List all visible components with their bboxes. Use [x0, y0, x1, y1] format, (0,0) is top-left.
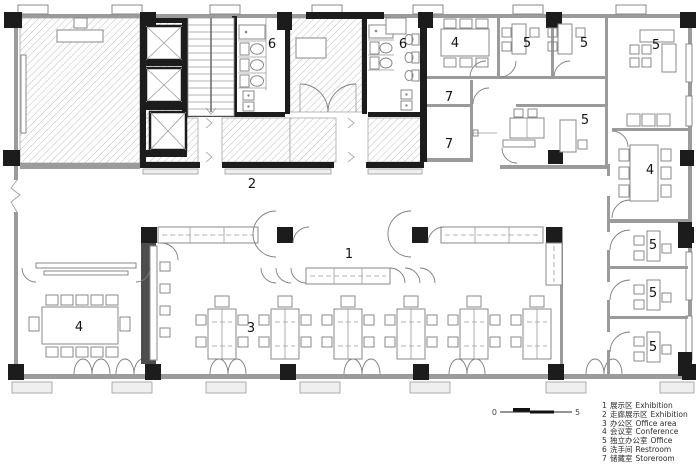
door-arc-icon	[610, 280, 630, 300]
display-case	[441, 227, 543, 243]
display-table	[57, 30, 103, 42]
corridor-hatch-3	[290, 118, 336, 162]
staircase	[188, 18, 234, 116]
washbasin-counter	[239, 25, 265, 39]
toilet-icon	[240, 59, 264, 71]
room-label-restroom-2: 6	[399, 37, 407, 52]
glass-partition	[36, 263, 136, 268]
urinal-icon	[401, 90, 412, 99]
desk	[560, 120, 576, 152]
door-arc-icon	[612, 131, 628, 147]
room-label-office-mid: 5	[581, 113, 589, 128]
fan-doors-icon	[390, 268, 435, 283]
door-arc-icon	[161, 243, 178, 260]
office-top-1	[500, 24, 539, 77]
reception-desk	[296, 38, 326, 58]
door-arc-icon	[473, 88, 489, 104]
conference-table	[441, 29, 489, 56]
bottom-window-sills	[12, 382, 694, 393]
floor-plan-page: { "rooms": { "exhibition_hall": {"number…	[0, 0, 700, 472]
wall-shelf	[21, 55, 26, 133]
door-arc-icon	[293, 227, 309, 243]
right-window	[686, 96, 692, 126]
room-label-office-top-1: 5	[523, 36, 531, 51]
right-window	[686, 252, 692, 300]
room-label-storeroom-1: 7	[445, 90, 453, 105]
room-label-office-stack-3: 5	[649, 340, 657, 355]
desk-cluster	[448, 296, 500, 359]
door-arc-icon	[554, 61, 570, 77]
office-stack-room	[610, 280, 671, 310]
door-arc-icon	[22, 268, 36, 282]
desk-cluster	[511, 296, 551, 359]
toilet-icon	[370, 42, 392, 54]
projection-board	[44, 271, 128, 275]
right-window	[686, 44, 692, 82]
office-stack-room	[610, 332, 671, 362]
urinal-icon	[243, 102, 254, 111]
desk-cluster	[196, 296, 248, 359]
door-arc-icon	[610, 332, 630, 352]
display-case	[546, 243, 562, 285]
desk-cluster	[259, 296, 311, 359]
legend-label-zh: 储藏室	[610, 455, 633, 464]
bottom-wall	[8, 374, 692, 379]
door-arc-icon	[612, 200, 630, 218]
corridor-hatch-2	[222, 118, 290, 162]
office-mid	[502, 109, 587, 163]
room-label-office-area: 3	[247, 321, 255, 336]
cabinet	[386, 18, 406, 34]
elevator-icon	[150, 112, 186, 150]
hall-display-cases	[158, 211, 562, 285]
legend-item: 7 储藏室 Storeroom	[602, 455, 688, 464]
door-arc-icon	[610, 230, 630, 250]
office-stack-room	[610, 230, 671, 261]
fan-doors-icon	[261, 268, 306, 283]
desk	[558, 24, 572, 54]
room-label-conference-right: 4	[646, 163, 654, 178]
swing-door-icon	[388, 211, 411, 257]
wall-toilet-icon	[405, 52, 419, 63]
urinal-icon	[243, 91, 254, 100]
scale-end: 5	[575, 408, 580, 417]
room-label-conference-top: 4	[451, 36, 459, 51]
room-label-restroom-1: 6	[268, 37, 276, 52]
desk-cluster	[322, 296, 374, 359]
opening-break-icon	[348, 118, 354, 162]
door-arc-icon	[502, 148, 517, 163]
shelf	[503, 140, 535, 147]
restroom-2	[368, 18, 419, 110]
desk-cluster	[385, 296, 437, 359]
elevator-icon	[146, 68, 182, 102]
scale-start: 0	[492, 408, 497, 417]
elevator-icon	[146, 26, 182, 60]
room-label-conference-left: 4	[75, 320, 83, 335]
opening-break-icon	[206, 118, 212, 162]
restroom-1	[238, 18, 266, 111]
display-case	[306, 268, 390, 284]
urinal-icon	[401, 101, 412, 110]
floor-plan-svg: 1 2 3 4 4 4 5 5 5 5 5 5 5 6 6 7 7 0 5	[0, 0, 700, 472]
desk-return	[662, 44, 676, 72]
room-label-exhibition-hall: 1	[345, 247, 353, 262]
conference-room-top	[441, 19, 489, 77]
room-label-corridor-exhibition: 2	[248, 177, 256, 192]
legend-number: 7	[602, 455, 607, 464]
room-label-office-top-right: 5	[652, 38, 660, 53]
waiting-chairs	[627, 114, 670, 126]
door-arc-icon	[500, 61, 516, 77]
toilet-icon	[240, 43, 264, 55]
wall-toilet-icon	[405, 70, 419, 81]
room-label-storeroom-2: 7	[445, 137, 453, 152]
office-stack	[610, 230, 671, 362]
room-label-office-stack-1: 5	[649, 238, 657, 253]
conference-room-left	[22, 263, 150, 357]
storage-wall	[141, 243, 178, 364]
corridor-hatch-4	[368, 118, 424, 162]
storerooms	[473, 88, 497, 136]
legend: 1 展示区 Exhibition 2 走廊展示区 Exhibition 3 办公…	[602, 402, 688, 464]
central-hall-hatch	[290, 18, 362, 112]
display-stand	[74, 18, 87, 28]
legend-label-en: Storeroom	[636, 455, 675, 464]
toilet-icon	[240, 75, 264, 87]
toilet-icon	[370, 57, 392, 69]
scale-bar: 0 5	[492, 408, 580, 417]
room-label-office-stack-2: 5	[649, 286, 657, 301]
room-label-office-top-2: 5	[580, 36, 588, 51]
display-case	[158, 227, 258, 243]
